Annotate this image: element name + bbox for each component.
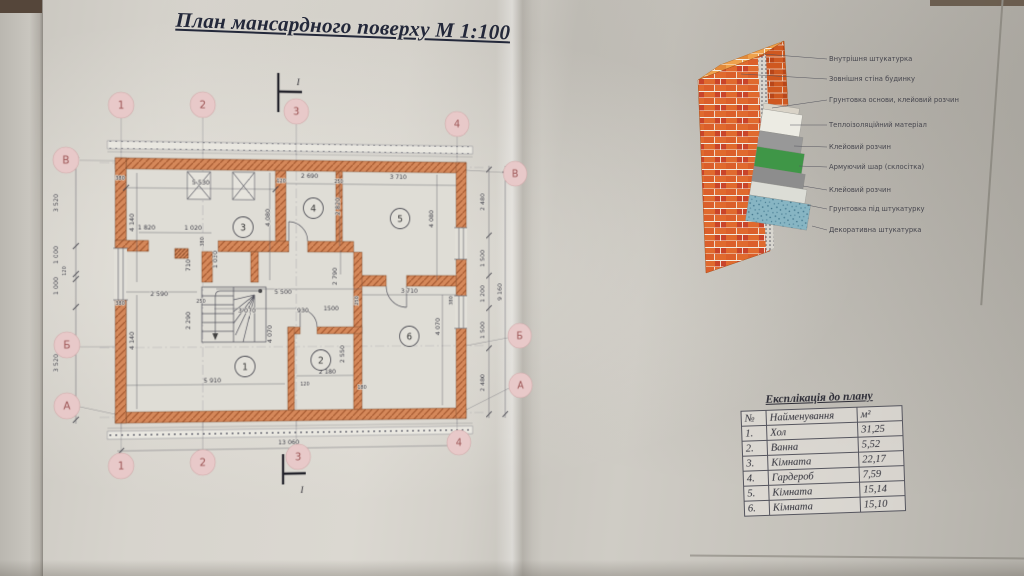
legend-cell-num: 1. bbox=[742, 425, 768, 441]
axis-bubble-left: А bbox=[63, 400, 71, 412]
dim-label: 1 000 bbox=[52, 277, 60, 295]
axis-bubble-bottom: 3 bbox=[295, 451, 301, 463]
dim-label: 1 200 bbox=[479, 285, 486, 302]
section-label: I bbox=[296, 77, 301, 87]
layer-label: Клейовий розчин bbox=[829, 143, 891, 151]
room-number: 2 bbox=[318, 356, 324, 367]
legend-cell-area: 15,10 bbox=[860, 496, 905, 513]
axis-bubble-right: Б bbox=[516, 330, 522, 341]
legend-cell-num: 5. bbox=[744, 485, 770, 501]
legend-cell-name: Кімната bbox=[769, 497, 860, 515]
dim-label: 4 070 bbox=[266, 325, 274, 343]
wall-section-figure: Внутрішня штукатурка Зовнішня стіна буди… bbox=[660, 0, 1000, 330]
dim-label: 120 bbox=[300, 382, 309, 388]
dim-label: 4 070 bbox=[434, 318, 441, 336]
layer-label: Грунтовка під штукатурку bbox=[829, 205, 925, 213]
dim-label: 120 bbox=[62, 266, 68, 276]
dim-label: 250 bbox=[355, 296, 361, 305]
axis-bubble-right: А bbox=[517, 380, 524, 392]
dim-label: 1 500 bbox=[479, 321, 486, 339]
dim-label: 5 500 bbox=[274, 288, 291, 296]
dim-label: 3 070 bbox=[238, 307, 255, 315]
layer-labels: Внутрішня штукатурка Зовнішня стіна буди… bbox=[828, 55, 959, 234]
legend-cell-num: 2. bbox=[742, 440, 768, 456]
room-number: 4 bbox=[310, 204, 316, 215]
axis-bubble-bottom: 1 bbox=[118, 460, 125, 472]
dim-label: 120 bbox=[277, 179, 286, 185]
floor-plan: 5 530 2 690 3 710 120 250 4 140 4 080 2 … bbox=[0, 0, 568, 511]
dim-label: 3 520 bbox=[52, 354, 60, 372]
dim-label: 2 290 bbox=[184, 312, 192, 330]
dim-label: 1500 bbox=[324, 305, 339, 313]
dim-label: 4 140 bbox=[128, 213, 136, 231]
room-number: 6 bbox=[407, 332, 413, 343]
legend-cell-area: 5,52 bbox=[858, 436, 903, 453]
legend-cell-area: 15,14 bbox=[860, 481, 905, 498]
axis-bubble-top: 4 bbox=[454, 119, 460, 131]
dim-label: 4 080 bbox=[264, 209, 272, 227]
dim-label: 250 bbox=[196, 299, 205, 305]
axis-bubble-bottom: 2 bbox=[200, 457, 206, 469]
dim-label: 4 140 bbox=[128, 332, 136, 350]
dim-label: 380 bbox=[200, 237, 206, 246]
dim-label: 380 bbox=[116, 176, 125, 182]
dim-label: 1 020 bbox=[184, 224, 202, 232]
dim-label: 3 520 bbox=[52, 194, 60, 212]
axis-bubble-top: 3 bbox=[293, 106, 299, 118]
dim-label: 250 bbox=[334, 179, 343, 185]
page-bottom-shadow bbox=[0, 560, 1024, 576]
dim-label: 2 590 bbox=[150, 290, 168, 298]
layer-label: Зовнішня стіна будинку bbox=[829, 75, 915, 83]
dim-label: 1 820 bbox=[138, 224, 156, 232]
dim-label: 2 690 bbox=[301, 172, 318, 180]
dim-label: 2 820 bbox=[334, 198, 341, 216]
layer-label: Декоративна штукатурка bbox=[829, 226, 921, 234]
room-number: 1 bbox=[242, 362, 248, 373]
dim-label: 1 500 bbox=[479, 250, 486, 268]
legend-header-area: м² bbox=[857, 406, 902, 423]
legend-cell-area: 31,25 bbox=[857, 421, 902, 438]
dim-label: 710 bbox=[184, 259, 192, 271]
dim-label: 180 bbox=[358, 385, 367, 391]
layer-label: Армуючий шар (склосітка) bbox=[829, 163, 925, 171]
axis-bubble-left: Б bbox=[63, 339, 70, 351]
legend-cell-num: 3. bbox=[743, 455, 769, 471]
legend-cell-num: 4. bbox=[743, 470, 769, 486]
layer-label: Клейовий розчин bbox=[829, 186, 891, 194]
room-number: 5 bbox=[397, 214, 403, 225]
axis-bubble-left: В bbox=[62, 155, 69, 167]
dim-label: 2 790 bbox=[331, 268, 339, 286]
legend-header-num: № bbox=[741, 410, 767, 426]
axis-bubble-right: В bbox=[512, 168, 519, 180]
legend-cell-area: 22,17 bbox=[858, 451, 903, 468]
dim-label: 2 480 bbox=[479, 193, 486, 211]
room-number: 3 bbox=[240, 223, 246, 234]
layer-label: Грунтовка основи, клейовий розчин bbox=[829, 96, 959, 104]
section-label: I bbox=[300, 485, 305, 495]
dim-label: 3 710 bbox=[390, 173, 407, 181]
dim-label: 3 710 bbox=[401, 287, 418, 295]
layer-label: Внутрішня штукатурка bbox=[829, 55, 912, 63]
legend-cell-area: 7,59 bbox=[859, 466, 904, 483]
dim-label: 4 080 bbox=[428, 210, 435, 228]
dim-label: 380 bbox=[449, 296, 454, 305]
dim-label: 9 160 bbox=[496, 283, 503, 300]
dim-label: 380 bbox=[116, 301, 125, 307]
legend-table: Експлікація до плану № Найменування м² 1… bbox=[734, 389, 908, 517]
axis-bubble-top: 1 bbox=[118, 100, 125, 112]
dim-label: 2 550 bbox=[339, 345, 346, 363]
axis-bubble-top: 2 bbox=[200, 99, 206, 111]
dim-label: 930 bbox=[297, 307, 308, 315]
dim-label: 5 910 bbox=[204, 377, 222, 385]
axis-bubble-bottom: 4 bbox=[456, 437, 462, 449]
legend-cell-num: 6. bbox=[744, 500, 770, 516]
dim-label: 2 480 bbox=[479, 374, 486, 392]
dim-label: 1 000 bbox=[52, 246, 60, 264]
dim-label: 5 530 bbox=[192, 179, 210, 187]
dim-label: 1 030 bbox=[211, 250, 219, 268]
layer-label: Теплоізоляційний матеріал bbox=[828, 121, 927, 129]
